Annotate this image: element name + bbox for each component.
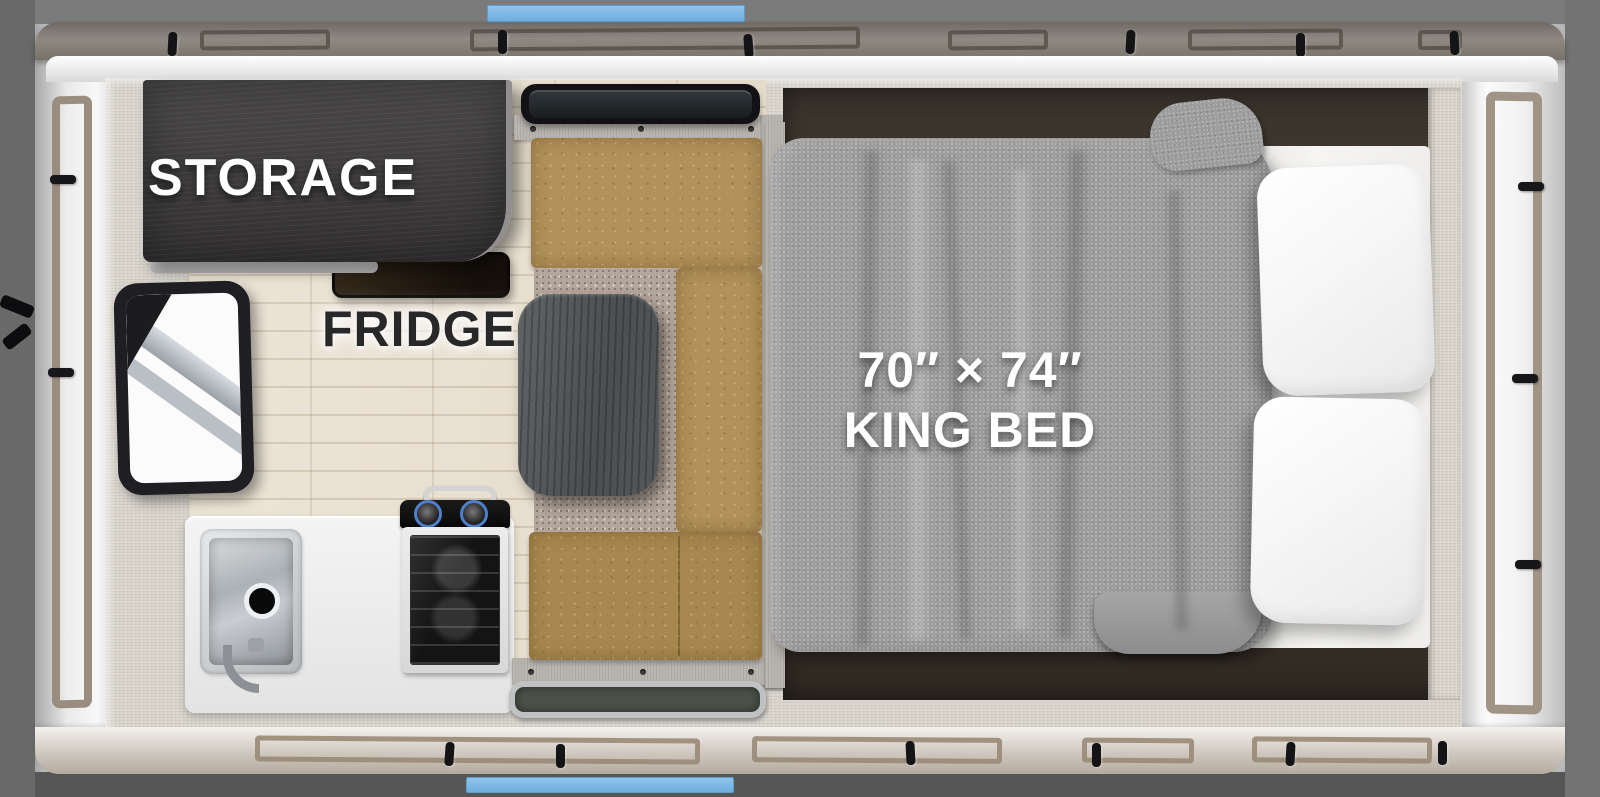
pillow <box>1250 396 1429 626</box>
screw-icon <box>530 126 536 132</box>
oven <box>402 527 508 673</box>
awning-rail-outline <box>1252 736 1432 763</box>
background-column-right <box>1565 0 1600 797</box>
entry-mat <box>509 681 766 718</box>
strap-clip-icon <box>556 744 565 768</box>
strap-clip-icon <box>743 34 754 59</box>
strap-clip-icon <box>1515 560 1541 569</box>
burner-icon <box>414 500 442 528</box>
strap-clip-icon <box>1512 374 1538 383</box>
overhead-tray <box>521 84 760 124</box>
strap-clip-icon <box>1438 741 1447 765</box>
strap-clip-icon <box>1449 31 1459 55</box>
strap-clip-icon <box>1518 182 1544 191</box>
strap-clip-icon <box>167 32 177 56</box>
screw-icon <box>748 669 754 675</box>
strap-clip-icon <box>1285 742 1295 766</box>
strap-clip-icon <box>1092 743 1101 767</box>
bed-label: 70″ × 74″ KING BED <box>795 340 1145 460</box>
roof-accent-bar-top <box>487 5 745 22</box>
sink-drain-icon <box>244 583 280 619</box>
dinette-bench-back-cushion <box>531 138 762 268</box>
camper-floorplan: STORAGE FRIDGE <box>0 0 1600 797</box>
dinette-bench-side-cushion <box>676 268 762 532</box>
bed-wall-strip <box>1428 88 1460 700</box>
dinette-table <box>518 294 659 496</box>
screw-icon <box>528 669 534 675</box>
window-glass <box>126 293 243 484</box>
dinette-bench-seat-cushion <box>529 532 762 660</box>
cushion-seam <box>678 536 680 656</box>
burner-icon <box>460 500 488 528</box>
screw-icon <box>638 126 644 132</box>
strap-clip-icon <box>498 30 507 54</box>
bed-type-text: KING BED <box>795 400 1145 460</box>
roof-accent-bar-bottom <box>466 777 734 793</box>
awning-rail-outline <box>752 736 1002 764</box>
awning-rail-outline <box>470 27 860 52</box>
awning-rail-outline <box>200 30 330 51</box>
strap-clip-icon <box>905 741 915 765</box>
strap-clip-icon <box>50 175 76 184</box>
bed-size-text: 70″ × 74″ <box>795 340 1145 400</box>
window <box>113 280 255 495</box>
exterior-trim-frame-left <box>52 96 92 709</box>
fridge-label: FRIDGE <box>322 304 517 354</box>
background-column-left <box>0 0 35 797</box>
strap-clip-icon <box>444 742 455 767</box>
stove-cooktop <box>400 500 510 528</box>
exterior-band-top <box>35 22 1565 60</box>
pillow <box>1256 163 1436 397</box>
strap-clip-icon <box>48 368 74 377</box>
background-strip-bottom <box>0 772 1600 797</box>
screw-icon <box>640 669 646 675</box>
strap-clip-icon <box>1125 30 1135 54</box>
storage-label: STORAGE <box>148 152 418 204</box>
exterior-band-bottom <box>35 727 1565 774</box>
awning-rail-outline <box>255 735 700 764</box>
oven-glass-door <box>410 535 500 665</box>
screw-icon <box>748 126 754 132</box>
faucet-base <box>248 638 264 652</box>
awning-rail-outline <box>1188 28 1343 50</box>
strap-clip-icon <box>1296 33 1305 57</box>
overhead-tray-inner <box>529 90 752 118</box>
awning-rail-outline <box>948 30 1048 51</box>
